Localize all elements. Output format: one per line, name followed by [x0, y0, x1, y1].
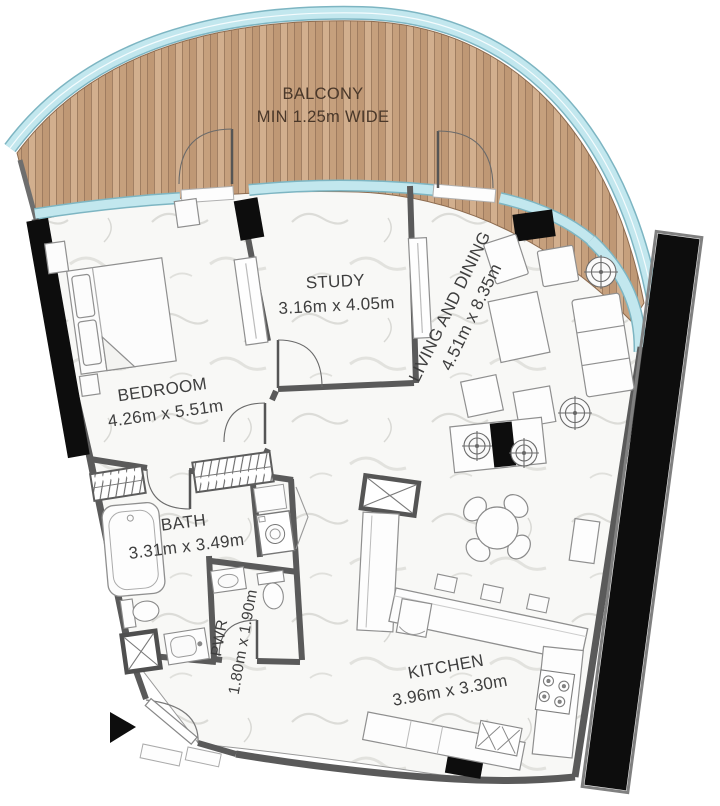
- kitchen-duct: [361, 475, 419, 515]
- room-label-balcony: BALCONY MIN 1.25m WIDE: [257, 83, 390, 129]
- entry-arrow-icon: [110, 712, 136, 743]
- floor-plan: BALCONY MIN 1.25m WIDE STUDY 3.16m x 4.0…: [0, 0, 720, 806]
- room-name: BALCONY: [257, 83, 390, 106]
- room-label-study: STUDY 3.16m x 4.05m: [277, 267, 396, 321]
- bedroom-stool: [174, 199, 199, 228]
- stove: [535, 670, 574, 714]
- duct-shaft: [122, 631, 161, 672]
- bath-vanity: [164, 628, 209, 665]
- room-dims: MIN 1.25m WIDE: [257, 106, 390, 129]
- entry-threshold: [140, 744, 182, 766]
- dishwasher: [396, 599, 431, 638]
